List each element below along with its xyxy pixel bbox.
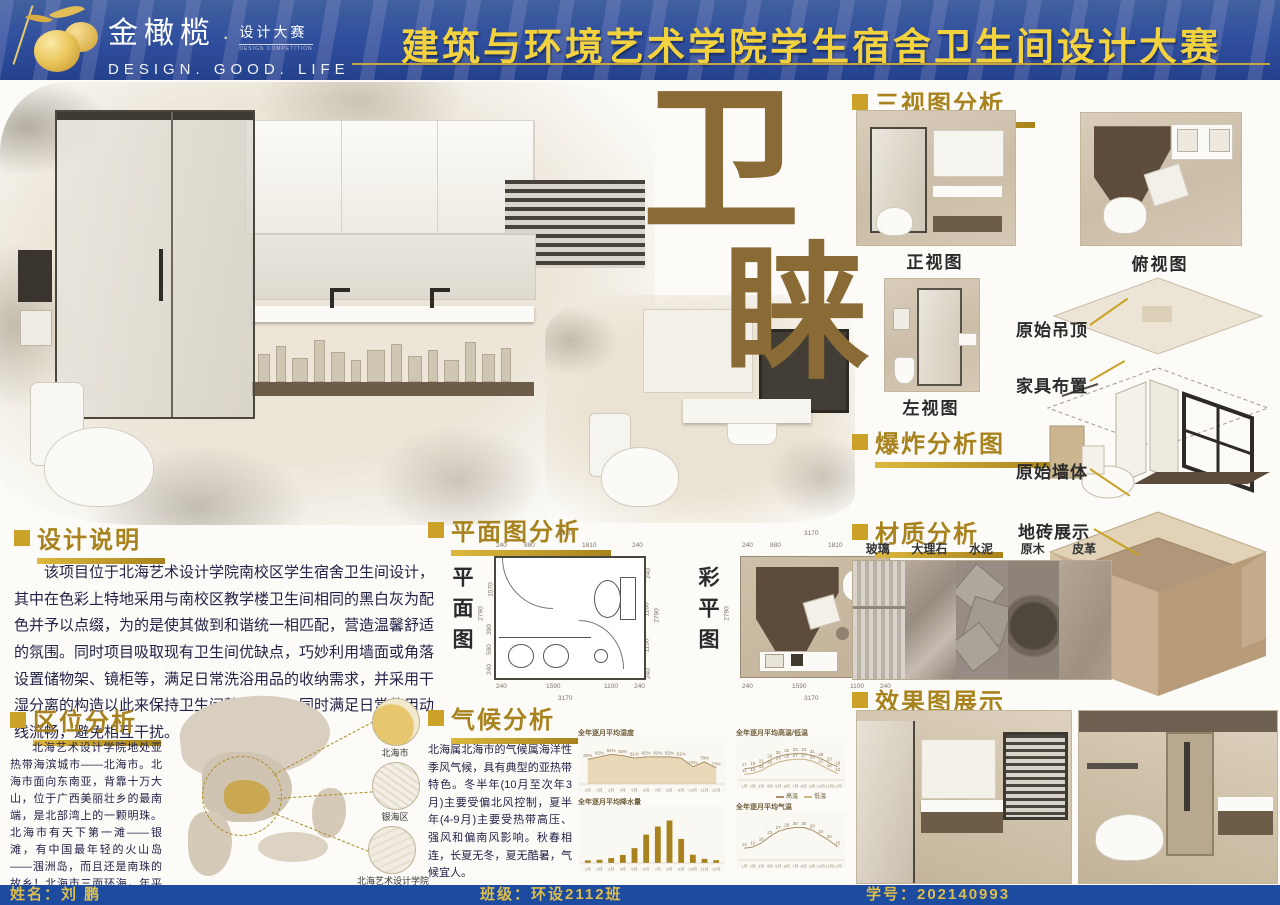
svg-text:74%: 74% bbox=[688, 760, 697, 765]
svg-text:7月: 7月 bbox=[792, 784, 798, 789]
svg-text:12月: 12月 bbox=[712, 867, 720, 872]
view-towel bbox=[893, 308, 910, 330]
humidity-area-chart: 80%82%84%83%81%82%82%82%81%74%78%73%1月2月… bbox=[578, 737, 726, 793]
svg-text:21: 21 bbox=[759, 758, 765, 763]
dim-left-total: 2790 bbox=[724, 606, 731, 620]
svg-text:9月: 9月 bbox=[678, 788, 684, 793]
svg-text:11: 11 bbox=[742, 768, 747, 773]
cplan-sink bbox=[765, 654, 785, 668]
render2-ceiling bbox=[1079, 711, 1277, 732]
left-view-label: 左视图 bbox=[884, 394, 978, 419]
view-toilet bbox=[894, 357, 915, 384]
map-callout-beihai bbox=[372, 698, 420, 746]
heading-square-icon bbox=[852, 434, 868, 450]
heading-square-icon bbox=[852, 524, 868, 540]
top-view-label: 俯视图 bbox=[1080, 250, 1240, 275]
map-callout-label: 北海市 bbox=[368, 746, 422, 759]
svg-text:30: 30 bbox=[793, 821, 799, 826]
photo-faucet-right bbox=[430, 288, 450, 308]
map-landmass-islands bbox=[258, 832, 328, 862]
svg-text:28: 28 bbox=[818, 752, 824, 757]
render2-shower-column bbox=[1184, 742, 1190, 811]
material-swatches bbox=[852, 560, 1112, 680]
plan-toilet-tank bbox=[620, 577, 635, 620]
heading-square-icon bbox=[852, 692, 868, 708]
brand-subtitle: 设计大赛 bbox=[239, 22, 312, 45]
legend-low: 低温 bbox=[814, 794, 826, 800]
svg-text:23: 23 bbox=[767, 830, 773, 835]
svg-text:4月: 4月 bbox=[767, 784, 773, 789]
dim-top-total: 3170 bbox=[558, 530, 572, 537]
design-note-section-heading: 设计说明 bbox=[14, 520, 165, 564]
render2-towel-bar bbox=[1087, 763, 1138, 770]
svg-text:17: 17 bbox=[742, 762, 748, 767]
svg-text:30: 30 bbox=[801, 821, 807, 826]
photo-toilet-bowl bbox=[44, 427, 154, 507]
svg-text:3月: 3月 bbox=[758, 864, 764, 869]
svg-text:10月: 10月 bbox=[689, 867, 697, 872]
svg-text:8月: 8月 bbox=[801, 864, 807, 869]
climate-title: 气候分析 bbox=[451, 700, 555, 735]
svg-text:15: 15 bbox=[759, 764, 765, 769]
svg-text:6月: 6月 bbox=[643, 788, 649, 793]
material-labels-row: 玻璃 大理石 水泥 原木 皮革 bbox=[852, 540, 1110, 557]
legend-high: 高温 bbox=[786, 794, 798, 800]
svg-text:7月: 7月 bbox=[655, 788, 661, 793]
svg-text:12: 12 bbox=[835, 767, 841, 772]
view-sink bbox=[1177, 129, 1198, 152]
svg-text:23: 23 bbox=[827, 757, 833, 762]
photo2-counter bbox=[683, 399, 811, 423]
photo-mirror-shelf bbox=[252, 234, 536, 300]
dim: 1590 bbox=[792, 683, 806, 690]
svg-text:5月: 5月 bbox=[631, 788, 637, 793]
svg-text:4月: 4月 bbox=[767, 864, 773, 869]
render1-counter bbox=[921, 800, 1002, 812]
view-cabinet bbox=[933, 130, 1005, 178]
photo-shower-glass bbox=[55, 110, 255, 419]
svg-text:18: 18 bbox=[750, 761, 756, 766]
location-map: 北海市 银海区 北海艺术设计学院 bbox=[162, 692, 434, 888]
hero-character-bottom: 睐 bbox=[722, 240, 870, 388]
dim-right-total: 2790 bbox=[653, 608, 660, 622]
svg-text:14: 14 bbox=[742, 842, 748, 847]
svg-text:8月: 8月 bbox=[666, 788, 672, 793]
render1-cabinet bbox=[921, 739, 996, 799]
svg-text:6月: 6月 bbox=[784, 864, 790, 869]
render1-window-blinds bbox=[1003, 732, 1069, 821]
svg-text:6月: 6月 bbox=[784, 784, 790, 789]
dim: 590 bbox=[486, 644, 493, 655]
footer-class: 班级：环设2112班 bbox=[480, 885, 623, 905]
photo-towel-dark bbox=[18, 250, 52, 302]
plan-door-arc-2 bbox=[579, 620, 624, 669]
svg-text:6月: 6月 bbox=[643, 867, 649, 872]
svg-text:80%: 80% bbox=[583, 753, 592, 758]
photo-vanity-counter bbox=[252, 306, 534, 322]
dim: 240 bbox=[632, 542, 643, 549]
poster: 金橄榄 · 设计大赛 DESIGN COMPETITION DESIGN. GO… bbox=[0, 0, 1280, 905]
front-view-label: 正视图 bbox=[856, 248, 1014, 273]
svg-text:24: 24 bbox=[776, 756, 782, 761]
exploded-label-ceiling: 原始吊顶 bbox=[1016, 316, 1088, 341]
dim-bottom-total: 3170 bbox=[804, 695, 818, 702]
photo-towel-light bbox=[20, 310, 52, 346]
svg-text:1月: 1月 bbox=[741, 864, 747, 869]
svg-text:81%: 81% bbox=[677, 752, 686, 757]
cplan-dark-box bbox=[791, 654, 803, 666]
render2-shower-wall bbox=[1166, 732, 1214, 856]
svg-text:10月: 10月 bbox=[817, 784, 825, 789]
brand-subtitle-en: DESIGN COMPETITION bbox=[239, 46, 312, 52]
map-callout-academy bbox=[368, 826, 416, 874]
svg-text:3月: 3月 bbox=[608, 867, 614, 872]
svg-text:7月: 7月 bbox=[792, 864, 798, 869]
svg-text:27: 27 bbox=[776, 825, 782, 830]
svg-text:19: 19 bbox=[835, 760, 841, 765]
svg-text:18: 18 bbox=[759, 837, 765, 842]
plan-sink-2 bbox=[543, 644, 569, 668]
footer-student-id: 学号：202140993 bbox=[866, 885, 1010, 905]
left-view-image bbox=[884, 278, 980, 392]
svg-text:21: 21 bbox=[818, 758, 824, 763]
location-title: 区位分析 bbox=[33, 702, 137, 737]
svg-text:33: 33 bbox=[793, 747, 799, 752]
plan-door-arc bbox=[502, 558, 553, 609]
exploded-label-furniture: 家具布置 bbox=[1016, 372, 1088, 397]
material-swatch-wood bbox=[1008, 561, 1060, 679]
svg-text:5月: 5月 bbox=[775, 784, 781, 789]
plan-counter-line bbox=[499, 637, 591, 638]
render1-under-shelf bbox=[921, 812, 1002, 833]
material-label-marble: 大理石 bbox=[904, 540, 956, 557]
material-swatch-leather bbox=[1059, 561, 1111, 679]
hero-character-top: 卫 bbox=[642, 82, 800, 240]
front-view-image bbox=[856, 110, 1016, 246]
svg-text:84%: 84% bbox=[607, 748, 616, 753]
view-shelf bbox=[933, 216, 1003, 232]
cplan-drain bbox=[836, 627, 849, 640]
brand-dot: · bbox=[222, 24, 229, 50]
svg-text:7月: 7月 bbox=[655, 867, 661, 872]
photo2-basin bbox=[727, 423, 777, 445]
material-swatch-glass bbox=[853, 561, 905, 679]
map-dashed-circle bbox=[202, 756, 282, 836]
svg-text:30: 30 bbox=[776, 750, 782, 755]
climate-section-heading: 气候分析 bbox=[428, 700, 579, 744]
dim: 240 bbox=[645, 668, 652, 679]
olive-logo-icon bbox=[16, 4, 102, 76]
svg-text:27: 27 bbox=[793, 753, 799, 758]
svg-text:11月: 11月 bbox=[825, 784, 833, 789]
svg-text:2月: 2月 bbox=[750, 864, 756, 869]
svg-text:33: 33 bbox=[801, 747, 807, 752]
material-swatch-cement bbox=[956, 561, 1008, 679]
svg-text:11月: 11月 bbox=[700, 788, 708, 793]
svg-text:1月: 1月 bbox=[585, 788, 591, 793]
render2-counter bbox=[1218, 797, 1273, 811]
svg-text:5月: 5月 bbox=[775, 864, 781, 869]
plan-sink-1 bbox=[508, 644, 534, 668]
render-image-2 bbox=[1078, 710, 1278, 884]
photo-toiletries bbox=[258, 328, 530, 382]
dim: 240 bbox=[645, 568, 652, 579]
svg-text:15: 15 bbox=[835, 841, 841, 846]
dim: 1100 bbox=[604, 683, 618, 690]
render-image-1 bbox=[856, 710, 1072, 884]
view-counter bbox=[933, 186, 1003, 197]
svg-text:9月: 9月 bbox=[678, 867, 684, 872]
floor-plan-drawing bbox=[494, 556, 646, 680]
svg-text:9月: 9月 bbox=[809, 864, 815, 869]
brand-block: 金橄榄 · 设计大赛 DESIGN COMPETITION DESIGN. GO… bbox=[108, 8, 350, 78]
material-label-wood: 原木 bbox=[1007, 540, 1059, 557]
dim: 240 bbox=[742, 542, 753, 549]
svg-text:20: 20 bbox=[827, 834, 833, 839]
dim: 390 bbox=[486, 624, 493, 635]
svg-text:1月: 1月 bbox=[585, 867, 591, 872]
svg-text:3月: 3月 bbox=[608, 788, 614, 793]
svg-text:25: 25 bbox=[810, 755, 816, 760]
svg-text:12月: 12月 bbox=[834, 784, 842, 789]
dim: 1590 bbox=[546, 683, 560, 690]
view-sink bbox=[1209, 129, 1230, 152]
dim: 1810 bbox=[828, 542, 842, 549]
svg-text:12: 12 bbox=[750, 767, 756, 772]
svg-text:12月: 12月 bbox=[712, 788, 720, 793]
svg-text:82%: 82% bbox=[595, 750, 604, 755]
svg-text:3月: 3月 bbox=[758, 784, 764, 789]
floor-plan-line: 3170 240 880 1810 240 2790 1570 390 590 … bbox=[472, 530, 664, 702]
svg-text:26: 26 bbox=[767, 754, 773, 759]
dim-top-total: 3170 bbox=[804, 530, 818, 537]
temperature-avg-chart: 1415182327293030282420151月2月3月4月5月6月7月8月… bbox=[736, 811, 846, 869]
chart-legend: 高温 低温 bbox=[776, 791, 826, 800]
svg-text:2月: 2月 bbox=[596, 788, 602, 793]
photo-shelf-board bbox=[252, 382, 534, 396]
photo2-toilet-bowl bbox=[601, 447, 679, 507]
photo-faucet-left bbox=[330, 288, 350, 308]
svg-text:9月: 9月 bbox=[809, 784, 815, 789]
material-label-glass: 玻璃 bbox=[852, 540, 904, 557]
map-callout-label: 银海区 bbox=[368, 810, 422, 823]
svg-text:73%: 73% bbox=[712, 761, 721, 766]
plan-toilet bbox=[594, 580, 621, 618]
svg-text:1月: 1月 bbox=[741, 784, 747, 789]
brand-slogan: DESIGN. GOOD. LIFE bbox=[108, 61, 350, 78]
svg-text:82%: 82% bbox=[665, 750, 674, 755]
svg-text:78%: 78% bbox=[700, 755, 709, 760]
location-body: 北海艺术设计学院地处亚热带海滨城市——北海市。北海市面向东南亚，背靠十万大山，位… bbox=[10, 740, 162, 905]
render2-under-shelf bbox=[1218, 811, 1273, 835]
material-label-leather: 皮革 bbox=[1058, 540, 1110, 557]
svg-text:10月: 10月 bbox=[689, 788, 697, 793]
render2-toilet bbox=[1095, 814, 1164, 861]
heading-square-icon bbox=[428, 710, 444, 726]
heading-square-icon bbox=[428, 522, 444, 538]
svg-text:27: 27 bbox=[801, 753, 807, 758]
dim: 240 bbox=[496, 542, 507, 549]
climate-body: 北海属北海市的气候属海洋性季风气候，具有典型的亚热带特色。冬半年(10月至次年3… bbox=[428, 742, 572, 883]
temperature-hilo-chart: 1718212630323333312823191112152024262727… bbox=[736, 737, 846, 789]
dim: 880 bbox=[524, 542, 535, 549]
svg-text:5月: 5月 bbox=[631, 867, 637, 872]
svg-text:4月: 4月 bbox=[620, 788, 626, 793]
svg-text:11月: 11月 bbox=[825, 864, 833, 869]
heading-square-icon bbox=[10, 712, 26, 728]
dim: 240 bbox=[634, 683, 645, 690]
svg-text:15: 15 bbox=[750, 841, 756, 846]
dim: 240 bbox=[496, 683, 507, 690]
svg-text:2月: 2月 bbox=[596, 867, 602, 872]
svg-text:2月: 2月 bbox=[750, 784, 756, 789]
header-bar: 金橄榄 · 设计大赛 DESIGN COMPETITION DESIGN. GO… bbox=[0, 0, 1280, 80]
svg-text:83%: 83% bbox=[618, 749, 627, 754]
header-underline bbox=[352, 63, 1270, 65]
svg-text:29: 29 bbox=[784, 822, 790, 827]
material-swatch-marble bbox=[905, 561, 957, 679]
dim-left-total: 2790 bbox=[478, 606, 485, 620]
footer-name: 姓名：刘 鹏 bbox=[10, 885, 101, 905]
svg-text:81%: 81% bbox=[630, 752, 639, 757]
dim: 240 bbox=[742, 683, 753, 690]
svg-text:4月: 4月 bbox=[620, 867, 626, 872]
svg-text:16: 16 bbox=[827, 763, 833, 768]
heading-square-icon bbox=[14, 530, 30, 546]
view-toilet bbox=[1103, 197, 1147, 233]
view-sink bbox=[958, 333, 977, 346]
photo-wall-cabinets bbox=[245, 120, 535, 234]
material-label-cement: 水泥 bbox=[955, 540, 1007, 557]
dim: 240 bbox=[486, 664, 493, 675]
dim: 880 bbox=[770, 542, 781, 549]
brand-name: 金橄榄 bbox=[108, 8, 216, 52]
exploded-label-walls: 原始墙体 bbox=[1016, 458, 1088, 483]
render1-shower-glass bbox=[857, 721, 915, 883]
exploded-title: 爆炸分析图 bbox=[875, 424, 1005, 459]
design-note-title: 设计说明 bbox=[37, 520, 141, 555]
svg-text:20: 20 bbox=[767, 759, 773, 764]
svg-text:82%: 82% bbox=[653, 750, 662, 755]
rainfall-bar-chart: 1月2月3月4月5月6月7月8月9月10月11月12月 bbox=[578, 806, 726, 872]
svg-text:32: 32 bbox=[784, 748, 790, 753]
heading-square-icon bbox=[852, 94, 868, 110]
svg-text:28: 28 bbox=[810, 824, 816, 829]
footer-bar: 姓名：刘 鹏 班级：环设2112班 学号：202140993 bbox=[0, 885, 1280, 905]
svg-text:8月: 8月 bbox=[801, 784, 807, 789]
svg-text:31: 31 bbox=[810, 749, 816, 754]
view-glass-door bbox=[917, 288, 962, 386]
view-toilet bbox=[876, 207, 913, 236]
dim: 1810 bbox=[582, 542, 596, 549]
svg-text:82%: 82% bbox=[642, 750, 651, 755]
svg-text:24: 24 bbox=[818, 829, 824, 834]
svg-text:26: 26 bbox=[784, 754, 790, 759]
svg-text:8月: 8月 bbox=[666, 867, 672, 872]
top-view-image bbox=[1080, 112, 1242, 246]
svg-text:10月: 10月 bbox=[817, 864, 825, 869]
map-callout-yinhai bbox=[372, 762, 420, 810]
svg-text:12月: 12月 bbox=[834, 864, 842, 869]
olive-fruit bbox=[34, 30, 80, 72]
svg-text:11月: 11月 bbox=[700, 867, 708, 872]
